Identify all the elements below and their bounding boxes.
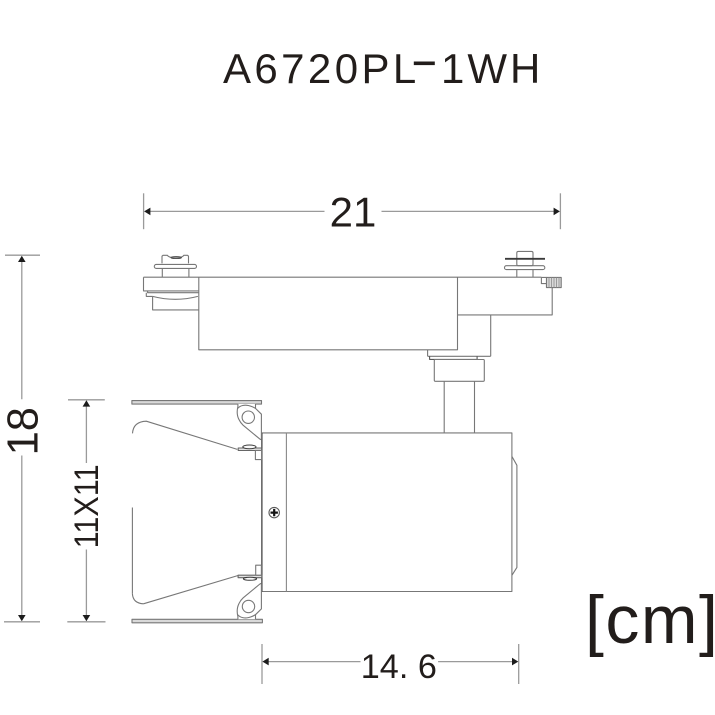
svg-text:11X11: 11X11 xyxy=(68,464,106,548)
svg-text:1WH: 1WH xyxy=(441,45,543,92)
svg-text:21: 21 xyxy=(330,189,377,236)
svg-text:14. 6: 14. 6 xyxy=(361,648,437,686)
svg-text:[cm]: [cm] xyxy=(585,582,715,658)
svg-text:A6720PL: A6720PL xyxy=(223,45,420,92)
svg-text:18: 18 xyxy=(0,407,48,455)
